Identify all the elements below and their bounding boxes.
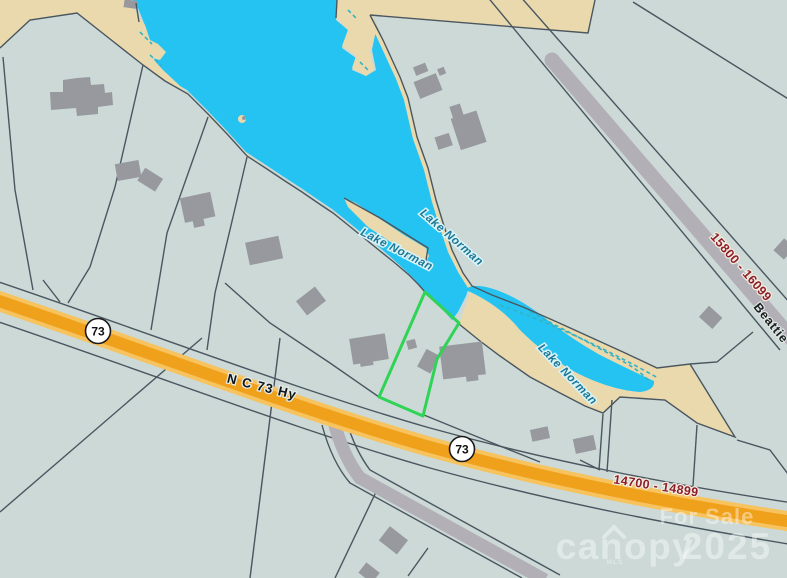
building	[439, 341, 486, 379]
parcel-map: Lake Norman Lake Norman Lake Norman N C …	[0, 0, 787, 578]
map-canvas[interactable]: Lake Norman Lake Norman Lake Norman N C …	[0, 0, 787, 578]
watermark-mls: MLS	[607, 559, 624, 566]
islet-rock	[242, 116, 246, 120]
building	[466, 371, 479, 381]
route-shield-number: 73	[91, 325, 105, 339]
route-shield-east: 73	[450, 437, 475, 462]
route-shield-west: 73	[86, 319, 111, 344]
watermark-year: 2025	[682, 526, 772, 567]
watermark-brand: canopy	[556, 526, 695, 567]
route-shield-number: 73	[455, 443, 469, 457]
